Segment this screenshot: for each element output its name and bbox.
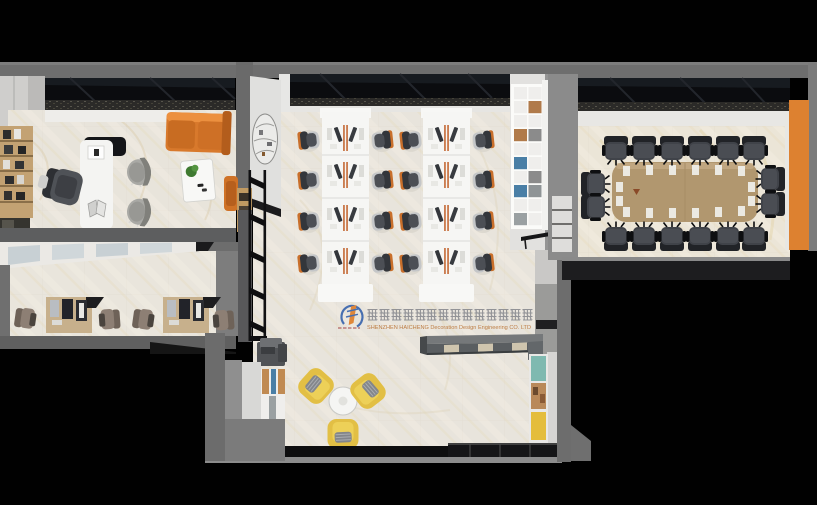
svg-text:SHENZHEN HAICHENG Decoration D: SHENZHEN HAICHENG Decoration Design Engi… xyxy=(367,325,531,331)
